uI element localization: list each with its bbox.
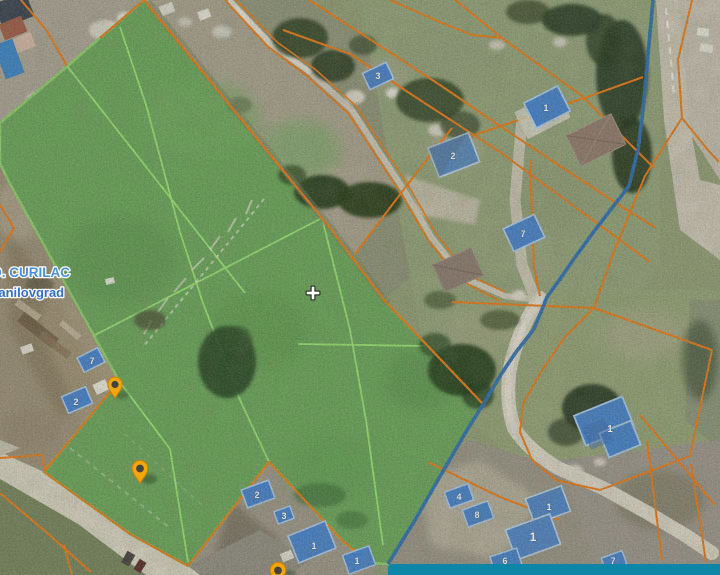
svg-text:D. CURILAC: D. CURILAC (0, 265, 70, 280)
svg-text:Danilovgrad: Danilovgrad (0, 285, 64, 300)
